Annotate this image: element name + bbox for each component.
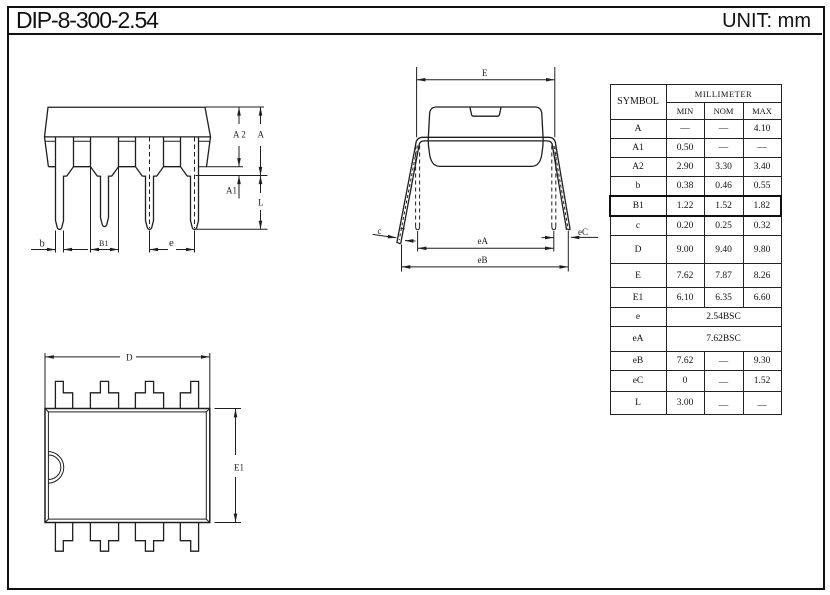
svg-text:E: E	[482, 68, 488, 78]
svg-text:A 2: A 2	[233, 130, 246, 140]
svg-text:D: D	[126, 353, 133, 363]
svg-text:b: b	[40, 239, 45, 250]
svg-text:eB: eB	[478, 255, 488, 265]
svg-text:L: L	[258, 198, 264, 208]
svg-text:e: e	[169, 237, 174, 249]
svg-text:A: A	[258, 130, 265, 140]
svg-text:eC: eC	[578, 227, 588, 237]
svg-text:B1: B1	[99, 239, 108, 248]
svg-text:c: c	[378, 226, 382, 236]
svg-text:E1: E1	[234, 463, 244, 473]
svg-text:A1: A1	[226, 186, 237, 196]
svg-text:eA: eA	[478, 236, 489, 246]
